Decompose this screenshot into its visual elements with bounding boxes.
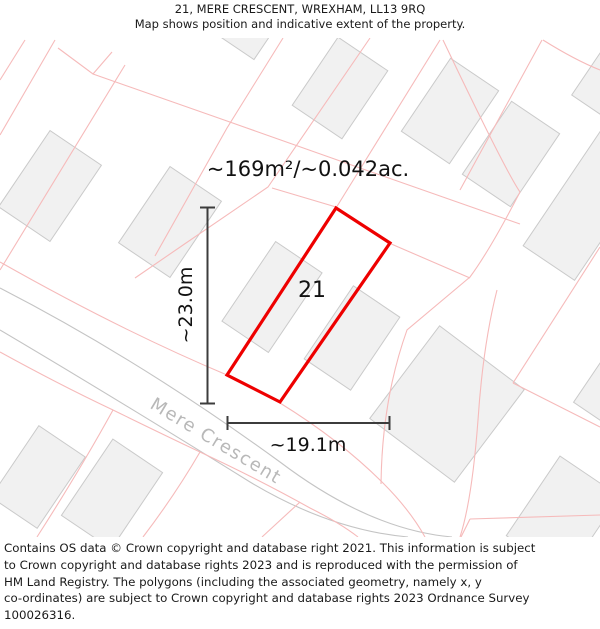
footer-line: 100026316. (4, 607, 596, 624)
map-canvas: Mere Crescent 21 ~169m²/~0.042ac. ~23.0m… (0, 0, 600, 625)
building (119, 167, 222, 278)
footer-line: HM Land Registry. The polygons (includin… (4, 574, 596, 591)
building (292, 37, 388, 139)
dimension-vertical (200, 208, 215, 404)
building (574, 336, 600, 428)
header: 21, MERE CRESCENT, WREXHAM, LL13 9RQ Map… (0, 0, 600, 38)
page-title: 21, MERE CRESCENT, WREXHAM, LL13 9RQ (0, 2, 600, 17)
page-subtitle: Map shows position and indicative extent… (0, 17, 600, 32)
copyright-footer: Contains OS data © Crown copyright and d… (0, 537, 600, 625)
dimension-horizontal (228, 416, 390, 430)
building (572, 37, 600, 123)
dimension-vertical-label: ~23.0m (175, 267, 197, 344)
building (370, 326, 524, 482)
footer-line: co-ordinates) are subject to Crown copyr… (4, 590, 596, 607)
footer-line: Contains OS data © Crown copyright and d… (4, 540, 596, 557)
dimension-horizontal-label: ~19.1m (270, 434, 347, 456)
area-label: ~169m²/~0.042ac. (207, 157, 409, 181)
footer-line: to Crown copyright and database rights 2… (4, 557, 596, 574)
plot-number-label: 21 (298, 278, 326, 303)
street-name-label: Mere Crescent (146, 394, 285, 489)
